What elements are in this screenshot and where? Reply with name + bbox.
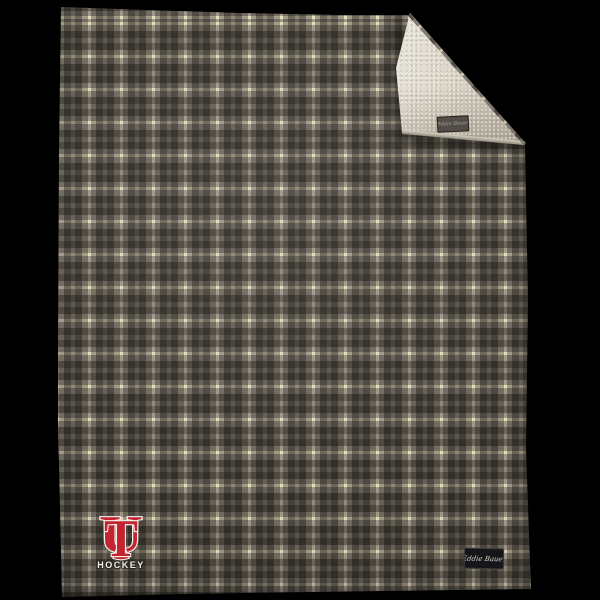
brand-tag-label: Eddie Bauer	[464, 554, 504, 563]
monogram-letter-t: T	[104, 512, 138, 562]
sherpa-brand-tag: Eddie Bauer	[437, 115, 470, 133]
ut-monogram-icon: U T	[92, 512, 150, 562]
brand-tag: Eddie Bauer	[464, 548, 504, 570]
blanket-front-panel	[0, 0, 600, 600]
product-photo-scene: Eddie Bauer Eddie Bauer U T HOCKEY	[0, 0, 600, 600]
sherpa-brand-tag-label: Eddie Bauer	[437, 120, 469, 128]
hockey-wordmark: HOCKEY	[92, 560, 150, 570]
fabric-edge-shading	[0, 0, 600, 600]
